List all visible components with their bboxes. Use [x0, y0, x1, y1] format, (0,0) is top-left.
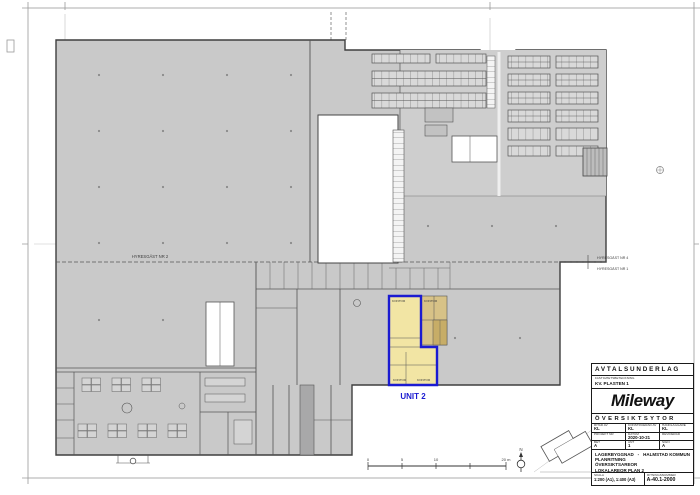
section-title: ÖVERSIKTSYTOR	[592, 414, 693, 424]
mileway-logo: Mileway	[592, 389, 693, 414]
number-caption: RITNINGSNUMMER	[647, 474, 676, 477]
stairs	[583, 148, 607, 176]
north-label: N	[519, 447, 522, 452]
municipality: HALMSTAD KOMMUN	[643, 452, 690, 457]
scale-number-row: SKALA 1:200 (A1), 1:400 (A3) RITNINGSNUM…	[592, 473, 693, 485]
meta-cell: DATUM2020-10-21	[626, 433, 660, 441]
meta-label: PROJEKT NR	[594, 433, 612, 436]
scale-bar: 0 5 10 20 m	[367, 457, 511, 470]
room-label-kontor: KONTOR	[424, 299, 438, 303]
meta-value: 1	[628, 443, 657, 448]
meta-table: RITAD AVKL KONSTRUERAD AVKL HANDLÄGGAREK…	[592, 424, 693, 450]
scale-tick-0: 0	[367, 457, 370, 462]
meta-cell: KONSTRUERAD AVKL	[626, 424, 660, 432]
room-label-kontor: KONTOR	[392, 299, 406, 303]
property-name: KV. PLASTEN 1	[595, 381, 690, 386]
meta-value: KL	[594, 426, 623, 431]
scale-tick-5: 5	[401, 457, 404, 462]
meta-label: RITAD AV	[594, 424, 612, 427]
doc-type: AVTALSUNDERLAG	[592, 364, 693, 376]
scale-tick-20: 20 m	[502, 457, 512, 462]
meta-label: DATUM	[628, 433, 646, 436]
scale-tick-10: 10	[434, 457, 439, 462]
meta-value: KL	[662, 426, 691, 431]
drawing-number-cell: RITNINGSNUMMER A-40.1-2000	[644, 473, 693, 485]
scale-value: 1:200 (A1), 1:400 (A3)	[594, 477, 644, 482]
meta-label: ANT	[628, 441, 646, 444]
meta-label: REVIDERAD	[662, 433, 680, 436]
property-caption: FASTIGHETSBETECKNING	[595, 377, 654, 380]
meta-row: PROJEKT NR DATUM2020-10-21 REVIDERAD	[592, 433, 693, 442]
meta-row: RITAD AVKL KONSTRUERAD AVKL HANDLÄGGAREK…	[592, 424, 693, 433]
meta-cell: SIGNA	[660, 441, 693, 449]
tenant-label-right-bottom: HYRESGÄST NR 1	[597, 267, 628, 271]
tenant-label-right-top: HYRESGÄST NR 4	[597, 256, 628, 260]
meta-cell: ANT1	[626, 441, 660, 449]
meta-label: HANDLÄGGARE	[662, 424, 680, 427]
rack-ladder	[393, 130, 404, 262]
room-label-kontor: KONTOR	[417, 378, 431, 382]
room-label-kontor: KONTOR	[393, 378, 407, 382]
meta-row: BETA ANT1 SIGNA	[592, 441, 693, 450]
meta-value: A	[662, 443, 691, 448]
meta-label: BET	[594, 441, 612, 444]
meta-label: SIGN	[662, 441, 680, 444]
scale-caption: SKALA	[594, 474, 625, 477]
scale-cell: SKALA 1:200 (A1), 1:400 (A3)	[592, 473, 644, 485]
center-hall	[318, 115, 404, 263]
meta-cell: REVIDERAD	[660, 433, 693, 441]
meta-cell: RITAD AVKL	[592, 424, 626, 432]
title-block: AVTALSUNDERLAG FASTIGHETSBETECKNING KV. …	[591, 363, 694, 486]
meta-cell: HANDLÄGGAREKL	[660, 424, 693, 432]
meta-value: A	[594, 443, 623, 448]
tenant-label-left: HYRESGÄST NR 2	[132, 254, 169, 259]
separator: -	[638, 452, 640, 457]
property-box: FASTIGHETSBETECKNING KV. PLASTEN 1	[592, 376, 693, 389]
project-description: LAGERBYGGNAD - HALMSTAD KOMMUN PLANRITNI…	[592, 450, 693, 473]
drawing-sheet: KONTOR KONTOR KONTOR KONTOR UNIT 2 HYRES…	[0, 0, 700, 495]
meta-cell: PROJEKT NR	[592, 433, 626, 441]
meta-value: KL	[628, 426, 657, 431]
meta-cell: BETA	[592, 441, 626, 449]
north-arrow-icon: N	[517, 447, 525, 472]
meta-label: KONSTRUERAD AV	[628, 424, 646, 427]
drawing-number: A-40.1-2000	[647, 477, 693, 483]
unit-2-label: UNIT 2	[400, 392, 426, 401]
